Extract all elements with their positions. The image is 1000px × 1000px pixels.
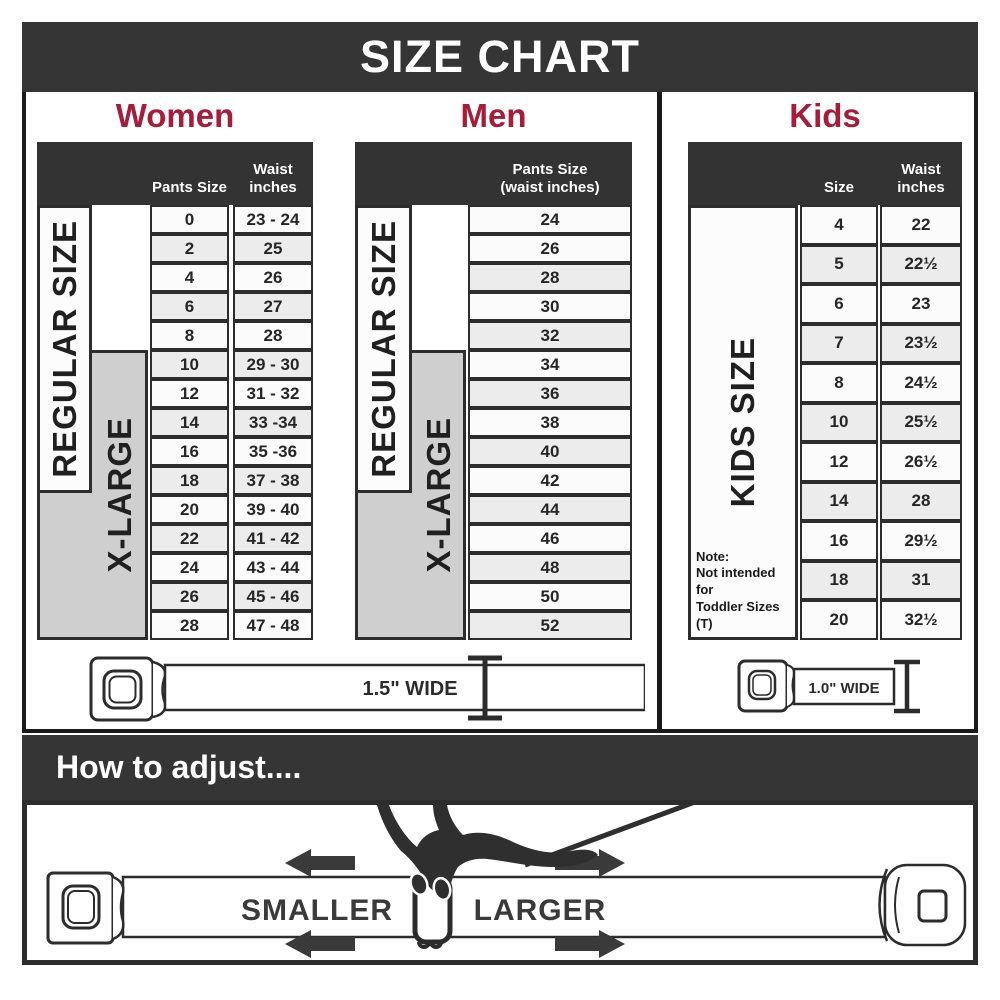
table-row: 34 [468,350,632,379]
kids-size-zone: KIDS SIZE Note: Not intended for Toddler… [688,205,798,640]
page-title: SIZE CHART [360,31,640,83]
table-row: 522½ [800,245,962,285]
table-cell: 37 - 38 [233,466,313,495]
table-cell: 7 [800,324,878,364]
table-cell: 28 [880,482,962,522]
table-row: 1231 - 32 [150,379,313,408]
table-row: 2443 - 44 [150,553,313,582]
table-row: 38 [468,408,632,437]
table-cell: 10 [800,403,878,443]
table-row: 44 [468,495,632,524]
kids-heading: Kids [688,96,962,136]
table-row: 2039 - 40 [150,495,313,524]
kids-belt-width-label: 1.0" WIDE [808,680,879,697]
table-cell: 20 [800,600,878,640]
table-row: 1029 - 30 [150,350,313,379]
table-row: 1837 - 38 [150,466,313,495]
table-row: 1226½ [800,442,962,482]
table-cell: 28 [468,263,632,292]
table-cell: 52 [468,611,632,640]
table-cell: 16 [800,521,878,561]
table-cell: 23 [880,284,962,324]
table-cell: 8 [800,363,878,403]
table-row: 52 [468,611,632,640]
table-cell: 46 [468,524,632,553]
table-cell: 24 [150,553,229,582]
table-row: 627 [150,292,313,321]
table-cell: 45 - 46 [233,582,313,611]
men-heading: Men [355,96,632,136]
men-table: 242628303234363840424446485052 [468,205,632,640]
table-cell: 12 [150,379,229,408]
women-table-header: Pants Size Waist inches [37,142,313,205]
table-cell: 8 [150,321,229,350]
table-cell: 43 - 44 [233,553,313,582]
table-row: 2847 - 48 [150,611,313,640]
women-xlarge-label: X-LARGE [101,417,139,573]
table-cell: 23 - 24 [233,205,313,234]
men-regular-zone: REGULAR SIZE [355,205,412,493]
table-cell: 20 [150,495,229,524]
table-row: 2032½ [800,600,962,640]
table-cell: 28 [150,611,229,640]
women-heading: Women [37,96,313,136]
table-row: 723½ [800,324,962,364]
kids-size-label: KIDS SIZE [724,337,762,507]
frame-left-border [22,92,26,733]
table-cell: 31 [880,561,962,601]
table-row: 225 [150,234,313,263]
table-row: 1433 -34 [150,408,313,437]
table-row: 1428 [800,482,962,522]
women-col-pants-size: Pants Size [150,179,229,198]
table-row: 50 [468,582,632,611]
table-cell: 44 [468,495,632,524]
table-row: 422 [800,205,962,245]
table-cell: 35 -36 [233,437,313,466]
table-row: 824½ [800,363,962,403]
table-cell: 23½ [880,324,962,364]
panel-divider [657,92,662,733]
table-cell: 26 [150,582,229,611]
table-cell: 24½ [880,363,962,403]
men-regular-label: REGULAR SIZE [365,220,403,478]
men-xlarge-label-holder: X-LARGE [411,350,466,640]
adjust-section-bar: How to adjust.... [22,735,978,800]
seatbelt-buckle-icon [739,661,794,711]
size-chart-page: SIZE CHART Women Men Kids Pants Size Wai… [0,0,1000,1000]
table-cell: 32 [468,321,632,350]
men-xlarge-label: X-LARGE [420,417,458,573]
table-cell: 26 [233,263,313,292]
kids-table: 422522½623723½824½1025½1226½14281629½183… [800,205,962,640]
women-xlarge-label-holder: X-LARGE [92,350,148,640]
kids-col-waist: Waist inches [880,161,962,199]
table-cell: 39 - 40 [233,495,313,524]
table-cell: 34 [468,350,632,379]
kids-belt-illustration: 1.0" WIDE [735,656,935,718]
table-cell: 22 [880,205,962,245]
table-cell: 24 [468,205,632,234]
women-regular-label: REGULAR SIZE [46,220,84,478]
kids-note: Note: Not intended for Toddler Sizes (T) [696,549,793,633]
women-regular-zone: REGULAR SIZE [37,205,92,493]
table-row: 2241 - 42 [150,524,313,553]
table-cell: 42 [468,466,632,495]
table-row: 426 [150,263,313,292]
table-row: 24 [468,205,632,234]
table-cell: 2 [150,234,229,263]
men-table-header: Pants Size (waist inches) [355,142,632,205]
frame-right-border [974,92,978,733]
table-cell: 30 [468,292,632,321]
table-cell: 18 [800,561,878,601]
women-col-waist: Waist inches [233,161,313,199]
table-cell: 6 [150,292,229,321]
table-cell: 36 [468,379,632,408]
table-row: 36 [468,379,632,408]
table-row: 26 [468,234,632,263]
table-cell: 18 [150,466,229,495]
table-cell: 47 - 48 [233,611,313,640]
table-cell: 33 -34 [233,408,313,437]
adjust-illustration [27,805,973,960]
table-row: 30 [468,292,632,321]
kids-table-header: Size Waist inches [688,142,962,205]
table-cell: 12 [800,442,878,482]
table-cell: 26½ [880,442,962,482]
table-row: 32 [468,321,632,350]
table-row: 40 [468,437,632,466]
table-cell: 48 [468,553,632,582]
table-cell: 29 - 30 [233,350,313,379]
table-cell: 22½ [880,245,962,285]
table-row: 46 [468,524,632,553]
belt-tip-icon [880,865,966,945]
table-cell: 28 [233,321,313,350]
table-row: 2645 - 46 [150,582,313,611]
men-col-pants-size: Pants Size (waist inches) [468,161,632,199]
table-cell: 4 [150,263,229,292]
table-cell: 50 [468,582,632,611]
table-cell: 40 [468,437,632,466]
table-cell: 22 [150,524,229,553]
table-cell: 10 [150,350,229,379]
table-row: 1025½ [800,403,962,443]
width-measure-icon [894,662,920,711]
table-row: 1831 [800,561,962,601]
table-row: 42 [468,466,632,495]
seatbelt-buckle-icon [48,873,123,943]
table-cell: 5 [800,245,878,285]
table-cell: 0 [150,205,229,234]
table-cell: 32½ [880,600,962,640]
larger-label: LARGER [460,894,620,928]
adult-belt-illustration: 1.5" WIDE [85,650,645,730]
table-cell: 6 [800,284,878,324]
table-cell: 29½ [880,521,962,561]
table-row: 1635 -36 [150,437,313,466]
table-cell: 31 - 32 [233,379,313,408]
table-cell: 27 [233,292,313,321]
table-cell: 41 - 42 [233,524,313,553]
table-row: 828 [150,321,313,350]
adjust-heading: How to adjust.... [22,749,301,786]
table-row: 28 [468,263,632,292]
adult-belt-width-label: 1.5" WIDE [362,678,457,700]
size-chart-banner: SIZE CHART [22,22,978,92]
table-row: 48 [468,553,632,582]
smaller-label: SMALLER [232,894,402,928]
table-cell: 14 [150,408,229,437]
women-table: 023 - 242254266278281029 - 301231 - 3214… [150,205,313,640]
table-row: 023 - 24 [150,205,313,234]
table-cell: 4 [800,205,878,245]
table-cell: 16 [150,437,229,466]
table-cell: 25 [233,234,313,263]
table-cell: 25½ [880,403,962,443]
table-row: 1629½ [800,521,962,561]
table-row: 623 [800,284,962,324]
seatbelt-buckle-icon [91,658,165,720]
table-cell: 26 [468,234,632,263]
table-cell: 14 [800,482,878,522]
kids-col-size: Size [800,179,878,198]
table-cell: 38 [468,408,632,437]
